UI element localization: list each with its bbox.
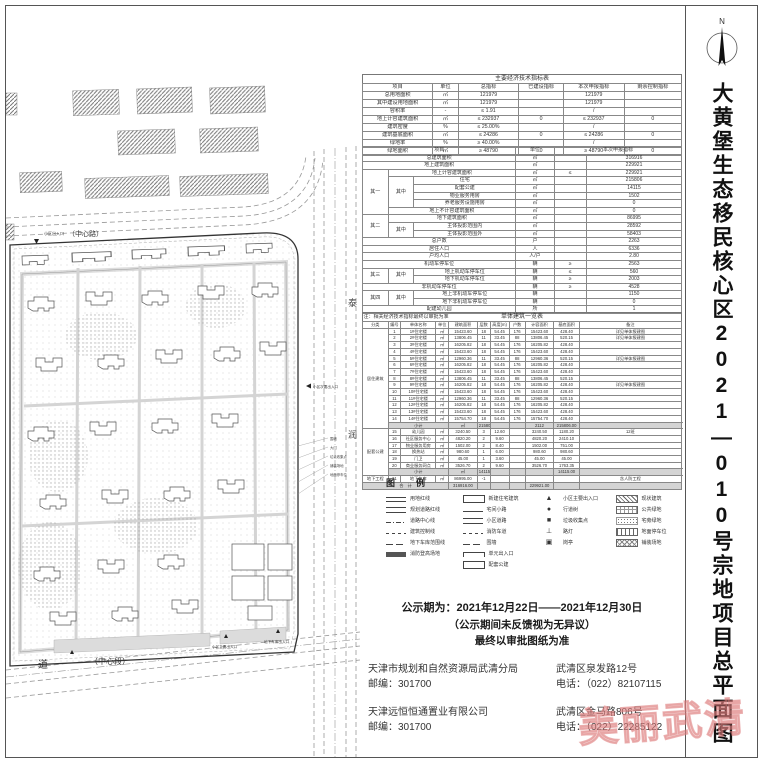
right-road-char-2: 润: [348, 429, 357, 440]
hatch-symbol-icon: [616, 495, 638, 503]
legend-label: 地面停车位: [642, 528, 667, 535]
leader-annotations: 围墙 大门 垃圾收集点 铺装场地 地面停车位: [298, 436, 348, 494]
legend-label: 行道树: [563, 506, 578, 513]
contact-developer: 天津远恒恒通置业有限公司 邮编：301700 武清区金马路806号 电话：（02…: [368, 705, 682, 735]
garage-entrance-label: 地下车库出入口: [264, 639, 290, 644]
plan-sheet: 小区出入口 （中心路） 道 （中心段） 泰 润 小区次要出入口 小区主要出入口 …: [0, 0, 763, 763]
legend-item: ▲小区主要出入口: [539, 493, 606, 504]
legend-item: 地下车库范围线: [386, 537, 453, 548]
developer-name: 天津远恒恒通置业有限公司: [368, 705, 556, 720]
legend-label: 公共绿地: [642, 506, 662, 513]
legend-item: 道路中心线: [386, 515, 453, 526]
rect-symbol-icon: [463, 495, 485, 503]
annotation-4: 地面停车位: [330, 472, 348, 477]
legend-label: 垃圾收集点: [563, 517, 588, 524]
legend-item: ■垃圾收集点: [539, 515, 606, 526]
public-notice: 公示期为：2021年12月22日——2021年12月30日 （公示期间未反馈视为…: [362, 600, 682, 649]
bureau-phone: 电话：（022）82107115: [556, 677, 682, 692]
legend-item: 围墙: [463, 537, 530, 548]
building-list-table: 单体建筑一览表分类编号单体名称单位建筑面积层数高度(m)户数计容面积基底面积备注…: [362, 312, 682, 490]
north-arrow: N: [694, 14, 750, 76]
grid-symbol-icon: [616, 506, 638, 514]
dash-symbol-icon: [463, 533, 483, 534]
bureau-zip: 邮编：301700: [368, 677, 556, 692]
legend-item: 消防车道: [463, 526, 530, 537]
legend-label: 路灯: [563, 528, 573, 535]
site-plan-map: 小区出入口 （中心路） 道 （中心段） 泰 润 小区次要出入口 小区主要出入口 …: [6, 6, 360, 757]
annotation-2: 垃圾收集点: [330, 454, 348, 459]
top-entrance-label: 小区出入口: [44, 230, 64, 236]
tri-symbol-icon: ▲: [539, 495, 559, 503]
road-right: [314, 146, 356, 757]
notice-no-objection: （公示期间未反馈视为无异议）: [362, 617, 682, 633]
developer-zip: 邮编：301700: [368, 720, 556, 735]
right-road-char-1: 泰: [348, 297, 357, 308]
legend-label: 围墙: [487, 539, 497, 546]
main-entrance-label: 小区主要出入口: [212, 644, 238, 649]
dbl-symbol-icon: [463, 518, 483, 524]
contact-bureau: 天津市规划和自然资源局武清分局 邮编：301700 武清区泉发路12号 电话：（…: [368, 662, 682, 692]
drawing-title: 大黄堡生态移民核心区2021—010号宗地项目总平面图: [711, 82, 732, 746]
legend-item: 宅间小路: [463, 504, 530, 515]
legend-item: 用地红线: [386, 493, 453, 504]
legend-title: 图 例: [386, 476, 682, 489]
legend-item: 公共绿地: [616, 504, 683, 515]
legend-label: 规划道路红线: [410, 506, 440, 513]
legend-label: 单元出入口: [489, 550, 514, 557]
legend-columns: 用地红线规划道路红线道路中心线建筑控制线地下车库范围线消防登高场地新建住宅建筑宅…: [386, 493, 682, 570]
bureau-address: 武清区泉发路12号: [556, 662, 682, 677]
legend-item: 配套公建: [463, 559, 530, 570]
developer-address: 武清区金马路806号: [556, 705, 682, 720]
dash-symbol-icon: [386, 533, 406, 534]
tee-symbol-icon: ⊥: [539, 528, 559, 536]
developer-phone: 电话：（022）22285122: [556, 720, 682, 735]
title-column: N 大黄堡生态移民核心区2021—010号宗地项目总平面图: [686, 6, 757, 757]
sq-symbol-icon: ■: [539, 517, 559, 525]
legend-item: 宅旁绿地: [616, 515, 683, 526]
legend-item: 新建住宅建筑: [463, 493, 530, 504]
bureau-name: 天津市规划和自然资源局武清分局: [368, 662, 556, 677]
dashdot-symbol-icon: [386, 522, 406, 523]
existing-buildings: [6, 86, 268, 240]
legend-item: 地面停车位: [616, 526, 683, 537]
right-column: 主要经济技术指标表项目单位总指标已建设指标本次申报指标剩余控制指标总用地面积㎡1…: [362, 6, 682, 757]
annotation-0: 围墙: [330, 436, 337, 441]
legend-label: 消防车道: [487, 528, 507, 535]
contacts: 天津市规划和自然资源局武清分局 邮编：301700 武清区泉发路12号 电话：（…: [368, 662, 682, 748]
legend-label: 铺装场地: [642, 539, 662, 546]
top-road-label: （中心路）: [68, 229, 103, 238]
bottom-road-name: 道: [38, 658, 48, 671]
legend-label: 宅旁绿地: [642, 517, 662, 524]
entrance-marker-right: [306, 384, 311, 389]
legend-label: 消防登高场地: [410, 550, 440, 557]
north-label: N: [719, 17, 725, 26]
dline-symbol-icon: [386, 497, 406, 502]
annotation-3: 铺装场地: [330, 463, 344, 468]
annotation-1: 大门: [330, 445, 337, 450]
box-symbol-icon: ▣: [539, 539, 559, 547]
dots-symbol-icon: [616, 517, 638, 525]
legend-label: 岗亭: [563, 539, 573, 546]
legend-label: 道路中心线: [410, 517, 435, 524]
xhatch-symbol-icon: [616, 539, 638, 547]
legend-item: 小区道路: [463, 515, 530, 526]
vbars-symbol-icon: [616, 528, 638, 536]
solid-symbol-icon: [386, 552, 406, 557]
notice-final-approval: 最终以审批图纸为准: [362, 633, 682, 649]
legend-label: 建筑控制线: [410, 528, 435, 535]
notice-period: 公示期为：2021年12月22日——2021年12月30日: [362, 600, 682, 617]
legend-label: 地下车库范围线: [410, 539, 445, 546]
legend-label: 小区主要出入口: [563, 495, 598, 502]
rect-symbol-icon: [463, 561, 485, 569]
economic-indicator-table: 主要经济技术指标表项目单位总指标已建设指标本次申报指标剩余控制指标总用地面积㎡1…: [362, 74, 682, 156]
legend-item: 单元出入口: [463, 548, 530, 559]
legend-label: 用地红线: [410, 495, 430, 502]
legend-label: 配套公建: [489, 561, 509, 568]
bracket-symbol-icon: [463, 552, 485, 557]
legend: 图 例 用地红线规划道路红线道路中心线建筑控制线地下车库范围线消防登高场地新建住…: [386, 476, 682, 570]
ldash-symbol-icon: [386, 544, 406, 545]
legend-item: 建筑控制线: [386, 526, 453, 537]
legend-item: 规划道路红线: [386, 504, 453, 515]
legend-item: ●行道树: [539, 504, 606, 515]
legend-label: 现状建筑: [642, 495, 662, 502]
dbl-symbol-icon: [386, 507, 406, 513]
dot-symbol-icon: ●: [539, 506, 559, 514]
ldash-symbol-icon: [463, 544, 483, 545]
secondary-entrance-label: 小区次要出入口: [313, 384, 339, 389]
legend-item: 铺装场地: [616, 537, 683, 548]
legend-label: 小区道路: [487, 517, 507, 524]
legend-label: 新建住宅建筑: [489, 495, 519, 502]
bottom-road-section: （中心段）: [90, 656, 130, 666]
legend-item: 消防登高场地: [386, 548, 453, 559]
legend-item: 现状建筑: [616, 493, 683, 504]
legend-item: ▣岗亭: [539, 537, 606, 548]
legend-item: ⊥路灯: [539, 526, 606, 537]
application-indicator-table: 项目单位本次申报指标总建筑面积㎡316916地上建筑面积㎡229921其一地上计…: [362, 146, 682, 321]
line-symbol-icon: [463, 511, 483, 512]
legend-label: 宅间小路: [487, 506, 507, 513]
road-top: [6, 156, 323, 236]
